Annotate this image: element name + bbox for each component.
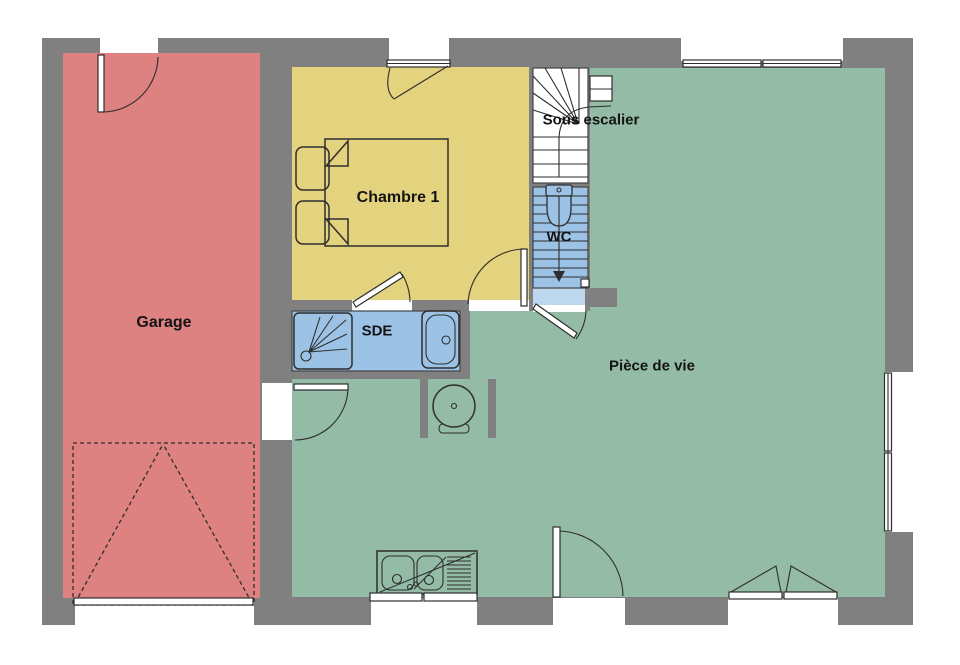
floor-plan: Garage Chambre 1 Sous escalier WC SDE Pi… xyxy=(0,0,960,665)
garage-top-door-icon xyxy=(98,55,158,112)
water-heater-icon xyxy=(433,385,475,433)
kitchen-sink-icon xyxy=(377,551,477,594)
bedroom-door-icon xyxy=(468,249,527,306)
wc-door-icon xyxy=(533,304,586,339)
shower-room-label: SDE xyxy=(362,323,393,340)
shower-room-door-icon xyxy=(353,272,410,307)
back-door-icon xyxy=(553,527,623,597)
bedroom-label: Chambre 1 xyxy=(357,189,440,207)
wc-label: WC xyxy=(547,229,572,246)
garage-living-door-icon xyxy=(294,384,348,440)
living-room-label: Pièce de vie xyxy=(609,358,695,375)
garage-label: Garage xyxy=(136,314,191,332)
bedroom-window-icon xyxy=(387,60,450,99)
stairs-label: Sous escalier xyxy=(543,112,640,129)
garage-main-door-icon xyxy=(73,443,254,605)
french-window-icon xyxy=(729,566,837,599)
living-window-icon xyxy=(683,60,841,67)
shower-tray-icon xyxy=(294,313,352,369)
bathtub-icon xyxy=(422,311,459,368)
plan-linework xyxy=(0,0,960,665)
right-window-icon xyxy=(885,373,892,531)
kitchen-window-icon xyxy=(370,593,477,601)
